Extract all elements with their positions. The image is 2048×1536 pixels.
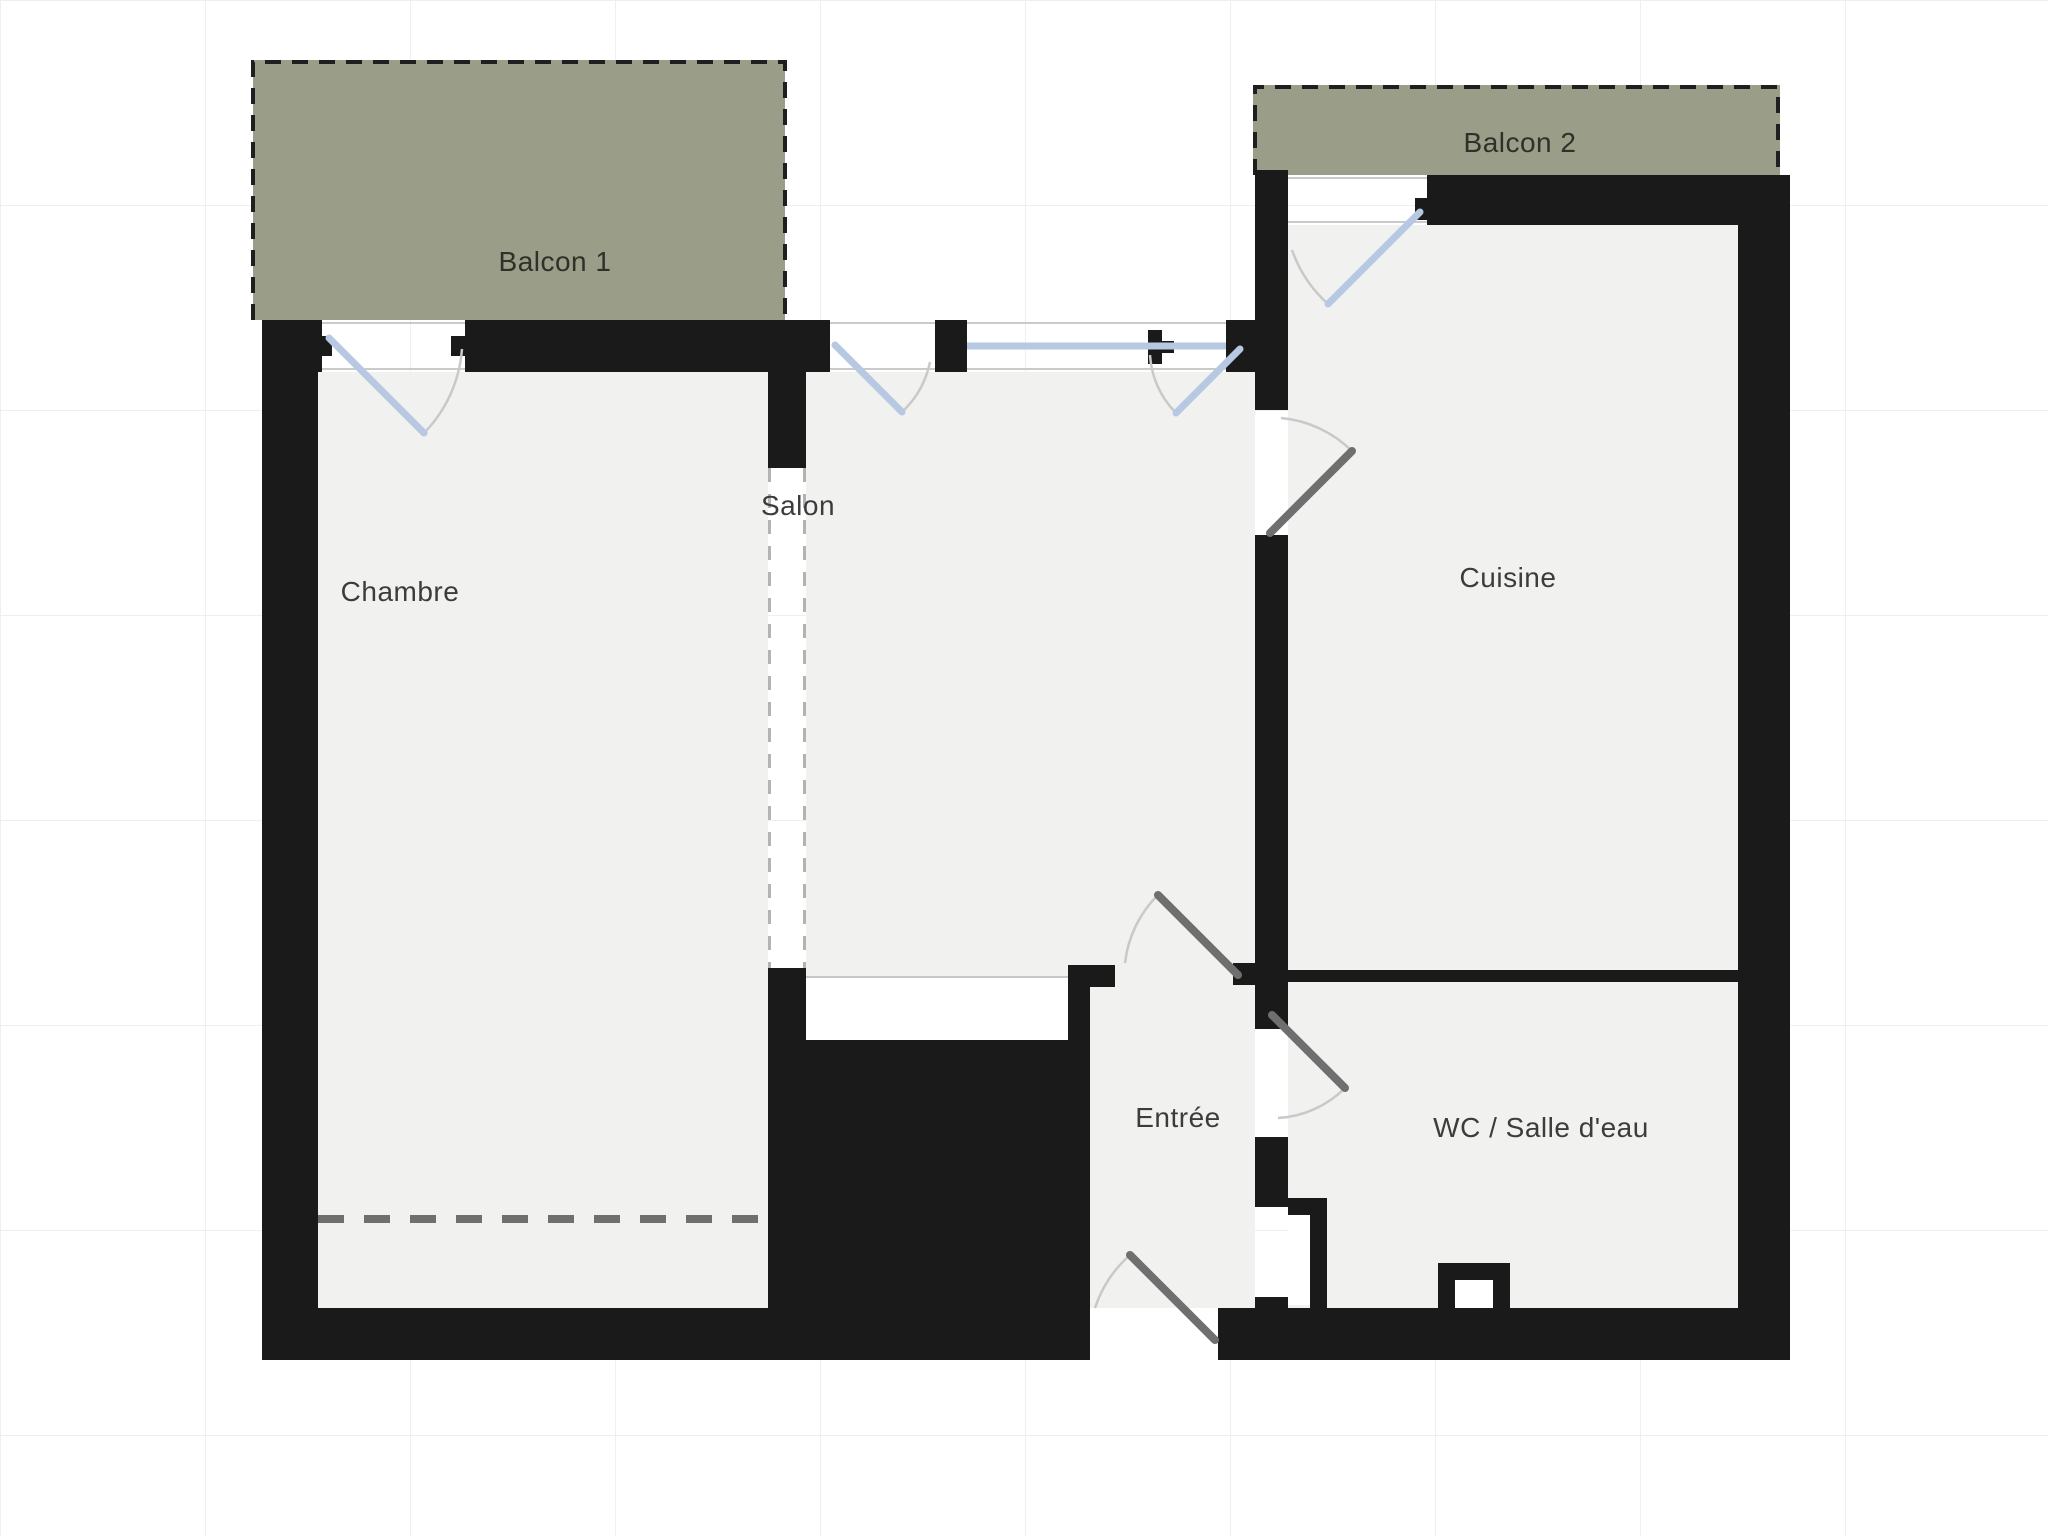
kitchen-bathroom-wall bbox=[1288, 970, 1738, 982]
entrance-opening bbox=[1090, 1308, 1218, 1360]
partition-bottom-segment bbox=[768, 968, 806, 1308]
bathroom-l-wall-horizontal bbox=[1288, 1198, 1327, 1215]
entry-floor bbox=[1080, 977, 1255, 1308]
left-outer-wall bbox=[262, 320, 318, 1360]
bathroom-l-wall-vertical bbox=[1310, 1215, 1327, 1308]
label-living: Salon bbox=[761, 490, 835, 522]
bedroom-floor bbox=[318, 372, 768, 1308]
living-floor bbox=[806, 372, 1255, 977]
entry-bathroom-wall-stub bbox=[1255, 1297, 1288, 1308]
living-top-wall-left bbox=[806, 320, 830, 372]
label-balcony2: Balcon 2 bbox=[1464, 127, 1577, 159]
bathroom-floor bbox=[1288, 982, 1738, 1308]
kitchen-left-wall-upper bbox=[1255, 225, 1288, 410]
bathroom-duct-inner bbox=[1455, 1280, 1493, 1308]
kitchen-left-wall-lower bbox=[1255, 535, 1288, 973]
floor-plan-stage: Balcon 1 Balcon 2 Chambre Salon Cuisine … bbox=[0, 0, 2048, 1536]
balcony1-area bbox=[253, 60, 785, 320]
label-entry: Entrée bbox=[1135, 1102, 1221, 1134]
entry-bathroom-wall-upper bbox=[1255, 973, 1288, 1015]
block-neck bbox=[1068, 987, 1090, 1040]
kitchen-top-wall bbox=[1427, 175, 1738, 225]
entry-bathroom-wall-mid bbox=[1255, 1137, 1288, 1207]
label-balcony1: Balcon 1 bbox=[499, 246, 612, 278]
solid-core-block bbox=[806, 1040, 1090, 1308]
bottom-outer-wall bbox=[262, 1308, 1790, 1360]
kitchen-floor bbox=[1288, 225, 1738, 970]
bathroom-niche-opening bbox=[1288, 1215, 1310, 1305]
label-bathroom: WC / Salle d'eau bbox=[1433, 1112, 1649, 1144]
kitchen-top-wall-corner bbox=[1255, 170, 1288, 225]
label-bedroom: Chambre bbox=[341, 576, 460, 608]
passage-strip bbox=[806, 977, 1080, 1040]
right-outer-wall bbox=[1738, 175, 1790, 1360]
bedroom-top-wall-left bbox=[262, 320, 322, 372]
floor-plan-drawing bbox=[0, 0, 2048, 1536]
living-entry-wall-pier bbox=[1068, 965, 1115, 987]
living-window-pier-left bbox=[935, 320, 967, 372]
partition-top-segment bbox=[768, 320, 806, 468]
label-kitchen: Cuisine bbox=[1460, 562, 1557, 594]
bedroom-top-wall-right bbox=[465, 320, 768, 372]
